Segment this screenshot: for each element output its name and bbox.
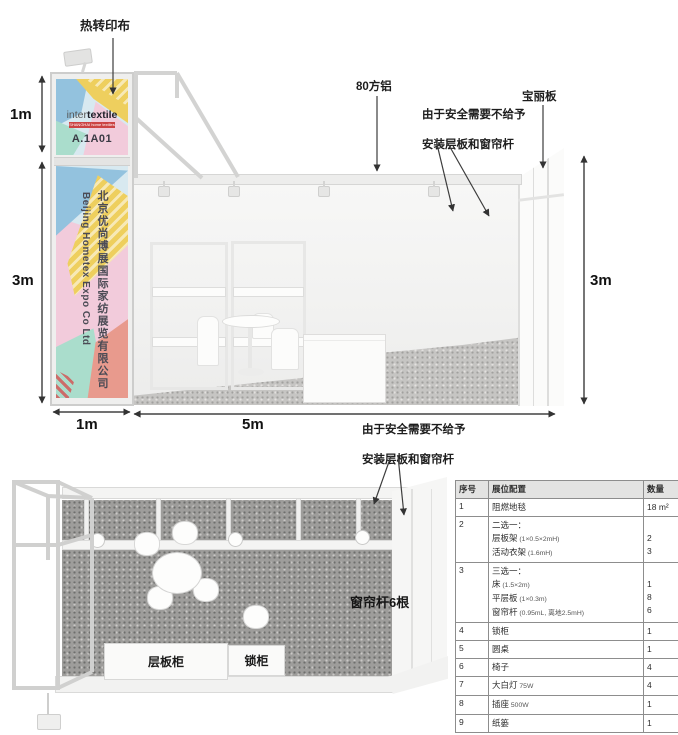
dim-wall-height-right: 3m <box>590 272 612 289</box>
row-qty: 1 <box>644 623 678 641</box>
label-poly-board: 宝丽板 <box>522 90 557 105</box>
tower-frame-divider <box>54 157 130 166</box>
booth-top-beam <box>130 174 522 185</box>
safety-note-line1: 由于安全需要不给予 <box>422 109 526 121</box>
chair <box>197 316 219 366</box>
plan-right-wall <box>392 477 447 683</box>
label-aluminum-80: 80方铝 <box>356 80 392 95</box>
table-row: 7大白灯 75W4 <box>456 677 678 696</box>
booth-number: A.1A01 <box>56 133 128 145</box>
spotlight-icon <box>355 530 370 545</box>
company-name-en: Beijing Hometex Expo Co Ltd <box>80 192 91 346</box>
row-number: 2 <box>456 517 489 563</box>
round-table <box>222 315 280 328</box>
curtain-rod-count-label: 窗帘杆6根 <box>350 592 409 611</box>
spotlight-icon <box>90 533 105 548</box>
shelf-unit <box>150 242 228 390</box>
logo-text: intertextile <box>56 109 128 121</box>
wall-post <box>431 489 433 675</box>
intertextile-logo: intertextile SHANGHAI home textiles A.1A… <box>56 109 128 145</box>
logo-textile: textile <box>87 109 117 121</box>
config-table-body: 1阻燃地毯18 m²2二选一：层板架 (1×0.5×2mH)活动衣架 (1.6m… <box>456 499 678 733</box>
table-header-cell: 数量 <box>644 481 678 499</box>
table-base <box>238 368 264 376</box>
table-row: 3三选一：床 (1.5×2m)平层板 (1×0.3m)窗帘杆 (0.95mL, … <box>456 563 678 623</box>
lock-cabinet-front <box>303 334 386 403</box>
chair <box>172 521 198 545</box>
row-number: 8 <box>456 696 489 715</box>
row-number: 6 <box>456 659 489 677</box>
row-qty: 23 <box>644 517 678 563</box>
logo-inter: inter <box>67 109 87 121</box>
row-config: 圆桌 <box>489 641 644 659</box>
row-config: 锁柜 <box>489 623 644 641</box>
label-heat-transfer-fabric: 热转印布 <box>80 19 130 34</box>
booth-design-sheet: intertextile SHANGHAI home textiles A.1A… <box>0 0 678 735</box>
row-config: 大白灯 75W <box>489 677 644 696</box>
row-qty: 4 <box>644 659 678 677</box>
row-number: 3 <box>456 563 489 623</box>
tower-sign-top: intertextile SHANGHAI home textiles A.1A… <box>56 79 128 155</box>
row-qty: 18 m² <box>644 499 678 517</box>
logo-subtitle: SHANGHAI home textiles <box>69 122 115 128</box>
row-number: 5 <box>456 641 489 659</box>
row-number: 9 <box>456 715 489 733</box>
shelf-cabinet-label: 层板柜 <box>148 653 184 670</box>
table-row: 2二选一：层板架 (1×0.5×2mH)活动衣架 (1.6mH) 23 <box>456 517 678 563</box>
label-safety-note-plan: 由于安全需要不给予 安装层板和窗帘杆 <box>362 423 466 468</box>
row-qty: 1 <box>644 696 678 715</box>
table-pedestal <box>248 324 252 370</box>
row-number: 1 <box>456 499 489 517</box>
row-config: 纸篓 <box>489 715 644 733</box>
dim-booth-width: 5m <box>242 416 264 433</box>
table-row: 5圆桌1 <box>456 641 678 659</box>
lock-cabinet-label: 锁柜 <box>244 652 268 669</box>
dim-tower-height: 1m <box>10 106 32 123</box>
wall-post <box>518 158 520 406</box>
dim-wall-height-left: 3m <box>12 272 34 289</box>
row-config: 插座 500W <box>489 696 644 715</box>
row-qty: 4 <box>644 677 678 696</box>
spotlight-icon <box>158 186 170 197</box>
table-row: 4锁柜1 <box>456 623 678 641</box>
row-qty: 1 <box>644 715 678 733</box>
wall-post <box>411 489 413 675</box>
lock-cabinet: 锁柜 <box>228 645 285 676</box>
shelf-board <box>152 287 226 297</box>
spotlight-icon <box>63 48 93 67</box>
shelf-board <box>233 287 304 297</box>
table-row: 1阻燃地毯18 m² <box>456 499 678 517</box>
table-row: 9纸篓1 <box>456 715 678 733</box>
table-header-cell: 序号 <box>456 481 489 499</box>
row-number: 7 <box>456 677 489 696</box>
config-table-head: 序号展位配置数量 <box>456 481 678 499</box>
spotlight-icon <box>228 186 240 197</box>
truss-frame <box>134 72 238 178</box>
spotlight-icon <box>318 186 330 197</box>
chair <box>243 605 269 629</box>
booth-right-wall <box>518 148 564 406</box>
dim-tower-width: 1m <box>76 416 98 433</box>
spotlight-icon <box>228 532 243 547</box>
row-config: 三选一：床 (1.5×2m)平层板 (1×0.3m)窗帘杆 (0.95mL, 离… <box>489 563 644 623</box>
company-name-cn: 北京优尚博展国际家纺展览有限公司 <box>94 190 110 390</box>
row-qty: 186 <box>644 563 678 623</box>
row-config: 椅子 <box>489 659 644 677</box>
row-config: 阻燃地毯 <box>489 499 644 517</box>
row-config: 二选一：层板架 (1×0.5×2mH)活动衣架 (1.6mH) <box>489 517 644 563</box>
safety-note-line1: 由于安全需要不给予 <box>362 424 466 436</box>
safety-note-line2: 安装层板和窗帘杆 <box>422 139 514 151</box>
wall-post <box>533 158 535 406</box>
row-number: 4 <box>456 623 489 641</box>
chair <box>134 532 160 556</box>
table-header-cell: 展位配置 <box>489 481 644 499</box>
power-socket-icon <box>37 714 61 730</box>
table-row: 6椅子4 <box>456 659 678 677</box>
label-safety-note-top: 由于安全需要不给予 安装层板和窗帘杆 <box>422 108 526 153</box>
plan-front-beam <box>62 487 446 499</box>
sign-tower: intertextile SHANGHAI home textiles A.1A… <box>50 72 134 406</box>
shelf-cabinet: 层板柜 <box>104 643 228 680</box>
safety-note-line2: 安装层板和窗帘杆 <box>362 454 454 466</box>
row-qty: 1 <box>644 641 678 659</box>
config-table: 序号展位配置数量 1阻燃地毯18 m²2二选一：层板架 (1×0.5×2mH)活… <box>455 480 676 733</box>
round-table-plan <box>152 552 202 594</box>
table-row: 8插座 500W1 <box>456 696 678 715</box>
chair <box>271 328 299 370</box>
tower-sign-bottom: 北京优尚博展国际家纺展览有限公司 Beijing Hometex Expo Co… <box>56 166 128 398</box>
spotlight-icon <box>428 186 440 197</box>
